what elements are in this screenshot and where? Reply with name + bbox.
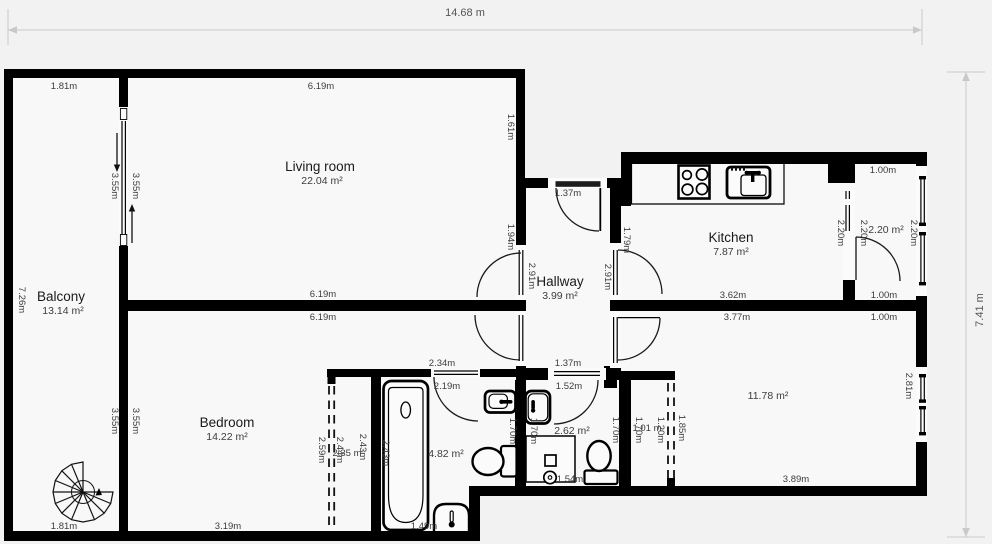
svg-text:2.62 m²: 2.62 m² (554, 425, 590, 437)
svg-text:3.62m: 3.62m (720, 290, 746, 301)
svg-text:1.81m: 1.81m (51, 521, 77, 532)
svg-text:4.82 m²: 4.82 m² (428, 448, 464, 460)
svg-text:1.37m: 1.37m (555, 188, 581, 199)
svg-text:1.49m: 1.49m (411, 521, 437, 532)
svg-text:3.77m: 3.77m (724, 312, 750, 323)
svg-text:2.59m: 2.59m (316, 437, 327, 463)
svg-text:Hallway: Hallway (536, 274, 584, 289)
svg-text:3.19m: 3.19m (215, 521, 241, 532)
svg-text:1.70m: 1.70m (528, 418, 539, 444)
svg-text:7.41 m: 7.41 m (974, 293, 986, 327)
svg-text:1.00m: 1.00m (871, 290, 897, 301)
svg-text:3.55m: 3.55m (130, 408, 141, 434)
svg-text:1.52m: 1.52m (556, 381, 582, 392)
svg-text:2.81m: 2.81m (903, 373, 914, 399)
svg-text:1.54m: 1.54m (557, 474, 583, 485)
svg-text:1.00m: 1.00m (870, 165, 896, 176)
svg-text:1.94m: 1.94m (505, 224, 516, 250)
svg-text:2.91m: 2.91m (602, 264, 613, 290)
svg-text:Kitchen: Kitchen (708, 230, 753, 245)
svg-text:1.00m: 1.00m (871, 312, 897, 323)
svg-text:3.89m: 3.89m (783, 474, 809, 485)
svg-text:7.87 m²: 7.87 m² (713, 246, 749, 258)
svg-text:1.70m: 1.70m (633, 417, 644, 443)
svg-text:14.22 m²: 14.22 m² (206, 431, 248, 443)
svg-text:2.43m: 2.43m (380, 440, 391, 466)
svg-text:1.85m: 1.85m (676, 415, 687, 441)
svg-text:2.34m: 2.34m (429, 358, 455, 369)
svg-text:2.19m: 2.19m (434, 381, 460, 392)
svg-text:Bedroom: Bedroom (200, 415, 255, 430)
svg-text:1.79m: 1.79m (621, 227, 632, 253)
svg-text:2.91m: 2.91m (526, 263, 537, 289)
svg-text:22.04 m²: 22.04 m² (301, 175, 343, 187)
svg-text:3.55m: 3.55m (109, 173, 120, 199)
svg-text:6.19m: 6.19m (310, 312, 336, 323)
svg-text:2.20m: 2.20m (908, 220, 919, 246)
svg-text:14.68 m: 14.68 m (445, 7, 485, 19)
svg-text:1.70m: 1.70m (610, 417, 621, 443)
svg-text:6.19m: 6.19m (310, 289, 336, 300)
svg-text:2.20m: 2.20m (835, 220, 846, 246)
svg-text:1.81m: 1.81m (51, 81, 77, 92)
svg-text:2.43m: 2.43m (357, 434, 368, 460)
svg-text:1.70m: 1.70m (507, 418, 518, 444)
svg-text:1.37m: 1.37m (555, 358, 581, 369)
svg-text:3.99 m²: 3.99 m² (542, 290, 578, 302)
svg-text:Balcony: Balcony (37, 289, 85, 304)
svg-text:1.61m: 1.61m (505, 114, 516, 140)
svg-text:Living room: Living room (285, 159, 355, 174)
svg-text:11.78 m²: 11.78 m² (748, 390, 789, 402)
svg-text:3.55m: 3.55m (130, 173, 141, 199)
svg-text:3.55m: 3.55m (109, 408, 120, 434)
svg-text:7.26m: 7.26m (16, 287, 27, 313)
svg-text:2.20m: 2.20m (858, 220, 869, 246)
svg-text:2.20 m²: 2.20 m² (868, 224, 904, 236)
svg-text:1.20m: 1.20m (655, 417, 666, 443)
svg-text:2.44m: 2.44m (334, 437, 345, 463)
svg-text:6.19m: 6.19m (308, 81, 334, 92)
svg-text:13.14 m²: 13.14 m² (42, 305, 84, 317)
